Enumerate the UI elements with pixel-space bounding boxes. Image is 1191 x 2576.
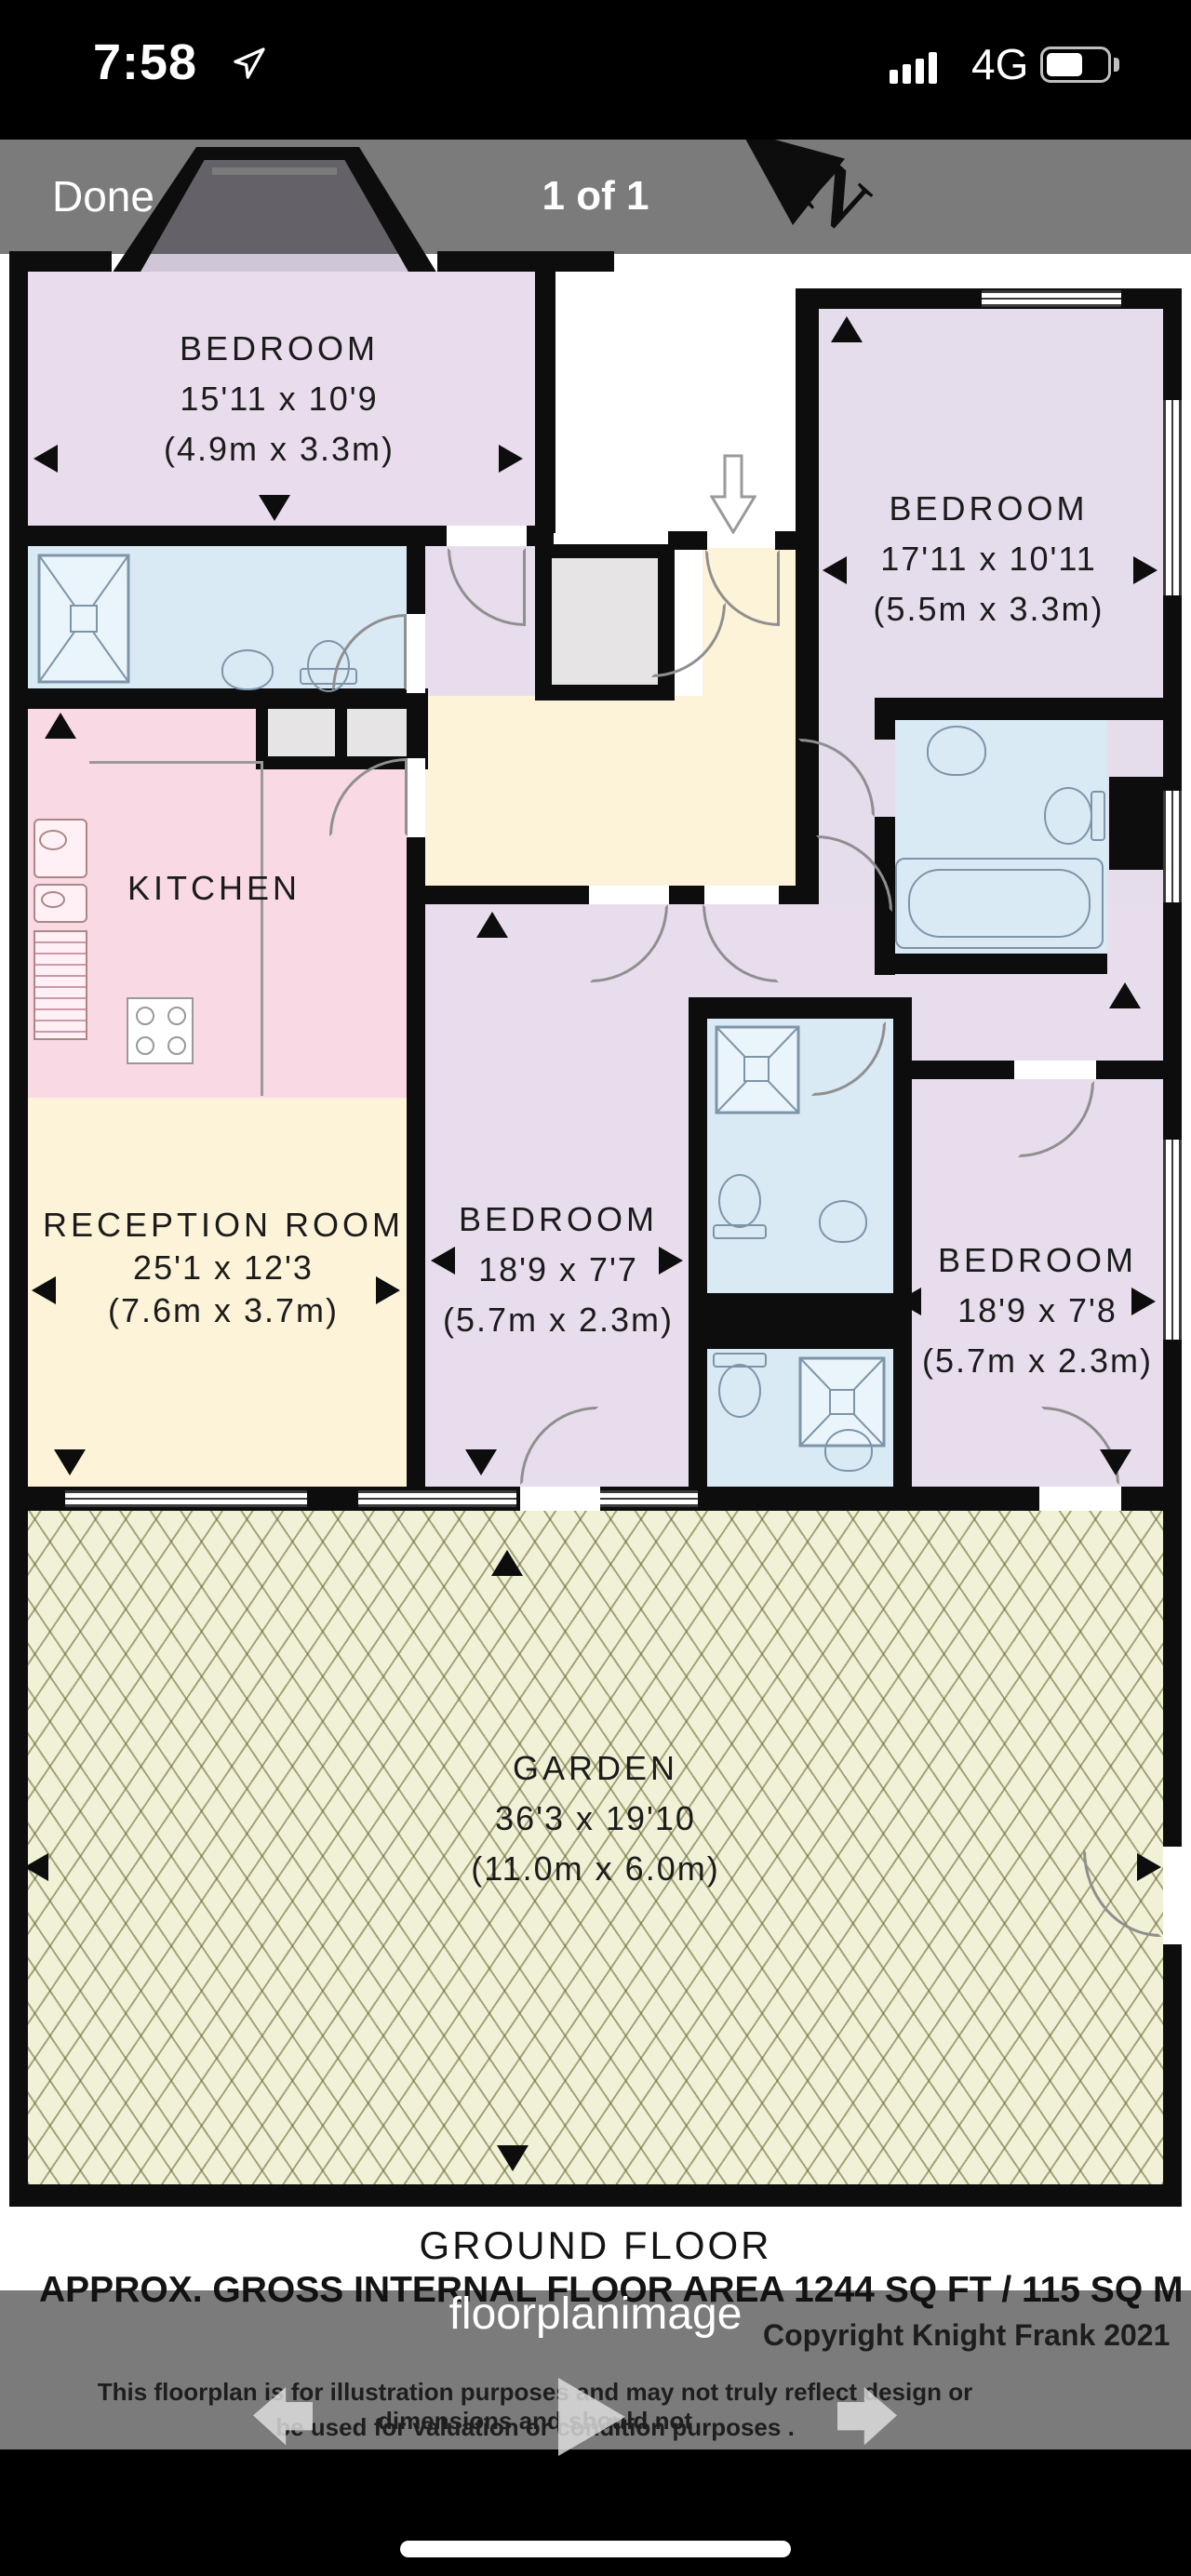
basin-icon	[819, 1200, 867, 1243]
toilet-icon	[718, 1364, 761, 1418]
shower-icon	[37, 554, 130, 684]
wall	[437, 251, 614, 272]
door-gap	[447, 526, 527, 546]
floor-caption: GROUND FLOOR	[0, 2223, 1191, 2268]
window	[1163, 1140, 1182, 1340]
bathtub-icon	[908, 869, 1091, 938]
wall	[875, 954, 1107, 974]
door-gap	[589, 886, 669, 904]
hob-ring-icon	[136, 1036, 154, 1055]
window	[65, 1490, 307, 1507]
hob-icon	[127, 997, 194, 1064]
wall	[875, 698, 895, 740]
label-bedroom-middle: BEDROOM 18'9 x 7'7 (5.7m x 2.3m)	[430, 1195, 687, 1345]
pointer-arrow	[54, 1449, 86, 1475]
toilet-tank-icon	[1091, 791, 1105, 841]
label-reception: RECEPTION ROOM 25'1 x 12'3 (7.6m x 3.7m)	[37, 1204, 409, 1332]
label-bedroom-top-left: BEDROOM 15'11 x 10'9 (4.9m x 3.3m)	[56, 324, 502, 474]
room-cupboard-2	[347, 702, 416, 756]
location-icon	[231, 45, 268, 82]
window	[1163, 400, 1182, 595]
basin-icon	[927, 726, 986, 776]
battery-nub-icon	[1114, 58, 1119, 72]
wall	[9, 688, 428, 709]
pointer-arrow	[465, 1449, 497, 1475]
pointer-arrow	[45, 713, 76, 739]
label-kitchen: KITCHEN	[74, 863, 354, 914]
label-bedroom-top-right: BEDROOM 17'11 x 10'11 (5.5m x 3.3m)	[819, 484, 1158, 634]
wall	[707, 1293, 893, 1349]
pointer-arrow	[259, 495, 290, 521]
basin-icon	[824, 1429, 873, 1472]
pointer-arrow	[1109, 982, 1141, 1008]
wall	[1109, 777, 1163, 870]
toilet-icon	[1044, 787, 1092, 845]
counter-edge	[261, 761, 263, 1096]
pointer-arrow	[1137, 1853, 1161, 1881]
hob-ring-icon	[167, 1007, 186, 1025]
cellular-bars-icon	[890, 47, 958, 84]
pointer-arrow	[24, 1853, 48, 1881]
wall	[689, 997, 912, 1019]
drainer-icon	[33, 930, 87, 1040]
door-gap	[407, 758, 425, 837]
wall	[689, 997, 707, 1487]
shower-icon	[715, 1025, 800, 1114]
pointer-arrow	[497, 2145, 529, 2171]
pointer-arrow	[831, 316, 863, 342]
label-bedroom-right: BEDROOM 18'9 x 7'8 (5.7m x 2.3m)	[910, 1235, 1165, 1386]
toilet-tank-icon	[713, 1224, 767, 1239]
window	[982, 290, 1121, 307]
entrance-arrow-icon	[710, 454, 756, 534]
hob-ring-icon	[167, 1036, 186, 1055]
wall	[893, 997, 912, 1487]
pointer-arrow	[491, 1550, 523, 1576]
door-gap	[704, 886, 779, 904]
door-gap	[1014, 1061, 1096, 1079]
counter-edge	[89, 761, 262, 764]
wall	[668, 531, 707, 550]
window	[1163, 791, 1182, 902]
watermark-text: floorplanimage	[0, 2289, 1191, 2340]
status-bar: 7:58 4G	[0, 0, 1191, 140]
hob-ring-icon	[136, 1007, 154, 1025]
screen: N BEDROOM 15'11 x 10'9 (4.9m x 3.3m) BED…	[0, 0, 1191, 2576]
pointer-arrow	[33, 445, 58, 473]
kitchen-sink-icon	[39, 830, 67, 850]
room-cupboard-1	[268, 702, 335, 756]
wall	[9, 251, 112, 272]
page-indicator: 1 of 1	[0, 173, 1191, 220]
door-gap	[407, 614, 425, 693]
wall	[9, 2184, 1182, 2207]
gate-gap	[1163, 1847, 1182, 1944]
door-gap	[1039, 1487, 1121, 1511]
wall	[875, 698, 1163, 720]
room-closet	[552, 558, 658, 685]
toilet-icon	[718, 1174, 761, 1228]
basin-icon	[221, 649, 274, 690]
toilet-tank-icon	[713, 1353, 767, 1368]
kitchen-sink-icon	[41, 891, 65, 908]
pointer-arrow	[1100, 1449, 1131, 1475]
window	[358, 1490, 516, 1507]
battery-icon	[1040, 47, 1111, 83]
label-garden: GARDEN 36'3 x 19'10 (11.0m x 6.0m)	[409, 1743, 782, 1894]
wall	[535, 251, 555, 533]
clock: 7:58	[93, 33, 197, 91]
network-type: 4G	[971, 39, 1028, 89]
home-indicator[interactable]	[400, 2541, 791, 2557]
room-hall	[425, 696, 797, 904]
pointer-arrow	[476, 912, 508, 938]
door-gap	[520, 1487, 600, 1511]
